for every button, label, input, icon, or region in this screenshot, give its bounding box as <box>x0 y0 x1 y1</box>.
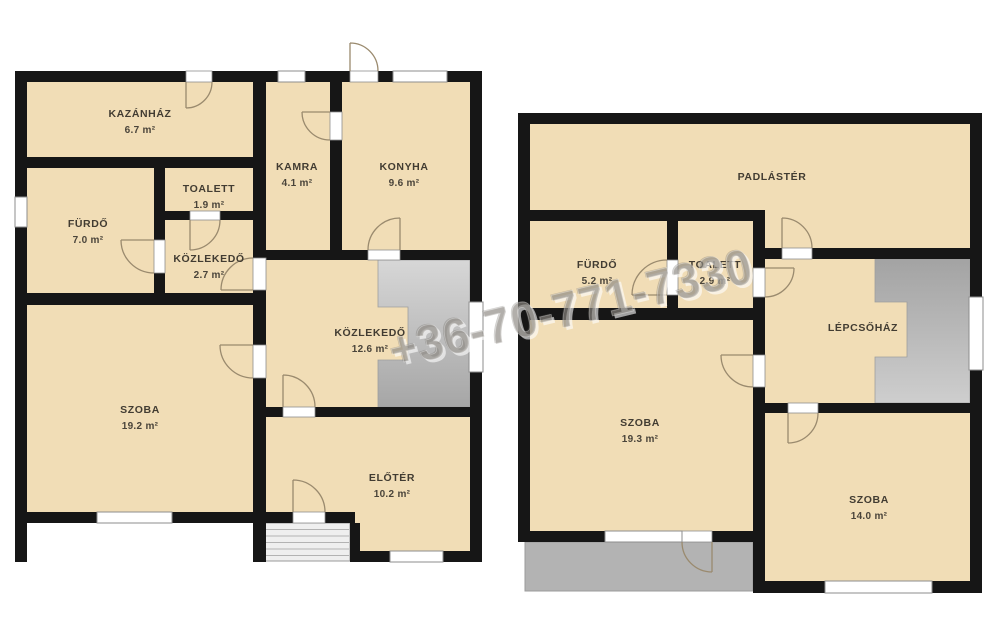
room-eloter <box>266 417 470 551</box>
door-opening-szoba <box>253 345 266 378</box>
label-kazanhaz: KAZÁNHÁZ <box>108 107 171 120</box>
window-szoba <box>97 512 172 523</box>
ground-floor-plan: KAZÁNHÁZ 6.7 m² TOALETT 1.9 m² FÜRDŐ 7.0… <box>15 43 483 562</box>
label-toalett-area: 1.9 m² <box>194 200 225 211</box>
label-kozlekedo-small: KÖZLEKEDŐ <box>173 252 244 265</box>
room-padlaster <box>530 124 970 210</box>
door-opening-kazanhaz-exterior <box>186 71 212 82</box>
window-szoba-14 <box>825 581 932 593</box>
room-furdo-ground <box>27 168 154 293</box>
door-opening-kamra-konyha <box>330 112 342 140</box>
label-szoba-ground-area: 19.2 m² <box>122 421 159 432</box>
door-opening-padlaster <box>782 248 812 259</box>
door-opening-konyha-exterior <box>350 71 378 82</box>
floorplan-svg: KAZÁNHÁZ 6.7 m² TOALETT 1.9 m² FÜRDŐ 7.0… <box>0 0 1000 636</box>
label-szoba-14: SZOBA <box>849 494 889 506</box>
label-kamra-area: 4.1 m² <box>282 178 313 189</box>
label-furdo-area: 7.0 m² <box>73 235 104 246</box>
window-szoba-19 <box>605 531 682 542</box>
door-opening-terrace <box>682 531 712 542</box>
door-opening-furdo <box>154 240 165 273</box>
door-opening-szoba-19 <box>753 355 765 387</box>
window-konyha <box>393 71 447 82</box>
label-konyha: KONYHA <box>379 161 428 173</box>
label-konyha-area: 9.6 m² <box>389 178 420 189</box>
upper-floor-plan: PADLÁSTÉR FÜRDŐ 5.2 m² TOALETT 2.9 m² LÉ… <box>518 113 983 593</box>
label-kozlekedo-small-area: 2.7 m² <box>194 270 225 281</box>
terrace <box>525 542 753 591</box>
label-kazanhaz-area: 6.7 m² <box>125 125 156 136</box>
label-padlaster: PADLÁSTÉR <box>738 170 807 183</box>
label-szoba-ground: SZOBA <box>120 404 160 416</box>
label-kozlekedo-large-area: 12.6 m² <box>352 344 389 355</box>
window-eloter <box>390 551 443 562</box>
door-opening-konyha-hall <box>368 250 400 260</box>
label-szoba-19-area: 19.3 m² <box>622 434 659 445</box>
label-lepcsohaz: LÉPCSŐHÁZ <box>828 321 898 334</box>
floorplan-image: KAZÁNHÁZ 6.7 m² TOALETT 1.9 m² FÜRDŐ 7.0… <box>0 0 1000 636</box>
door-opening-toalett <box>190 211 220 220</box>
door-opening-eloter-hall <box>283 407 315 417</box>
window-furdo <box>15 197 27 227</box>
upper-rooms <box>530 124 970 581</box>
window-kamra <box>278 71 305 82</box>
label-szoba-14-area: 14.0 m² <box>851 511 888 522</box>
door-opening-szoba-14 <box>788 403 818 413</box>
label-eloter-area: 10.2 m² <box>374 489 411 500</box>
label-kamra: KAMRA <box>276 161 318 173</box>
label-eloter: ELŐTÉR <box>369 471 415 484</box>
window-lepcsohaz <box>969 297 983 370</box>
label-furdo: FÜRDŐ <box>68 217 108 230</box>
label-szoba-19: SZOBA <box>620 417 660 429</box>
ground-exterior-cutout <box>27 523 253 562</box>
door-opening-kozlekedo-small <box>253 258 266 290</box>
label-toalett: TOALETT <box>183 183 235 195</box>
